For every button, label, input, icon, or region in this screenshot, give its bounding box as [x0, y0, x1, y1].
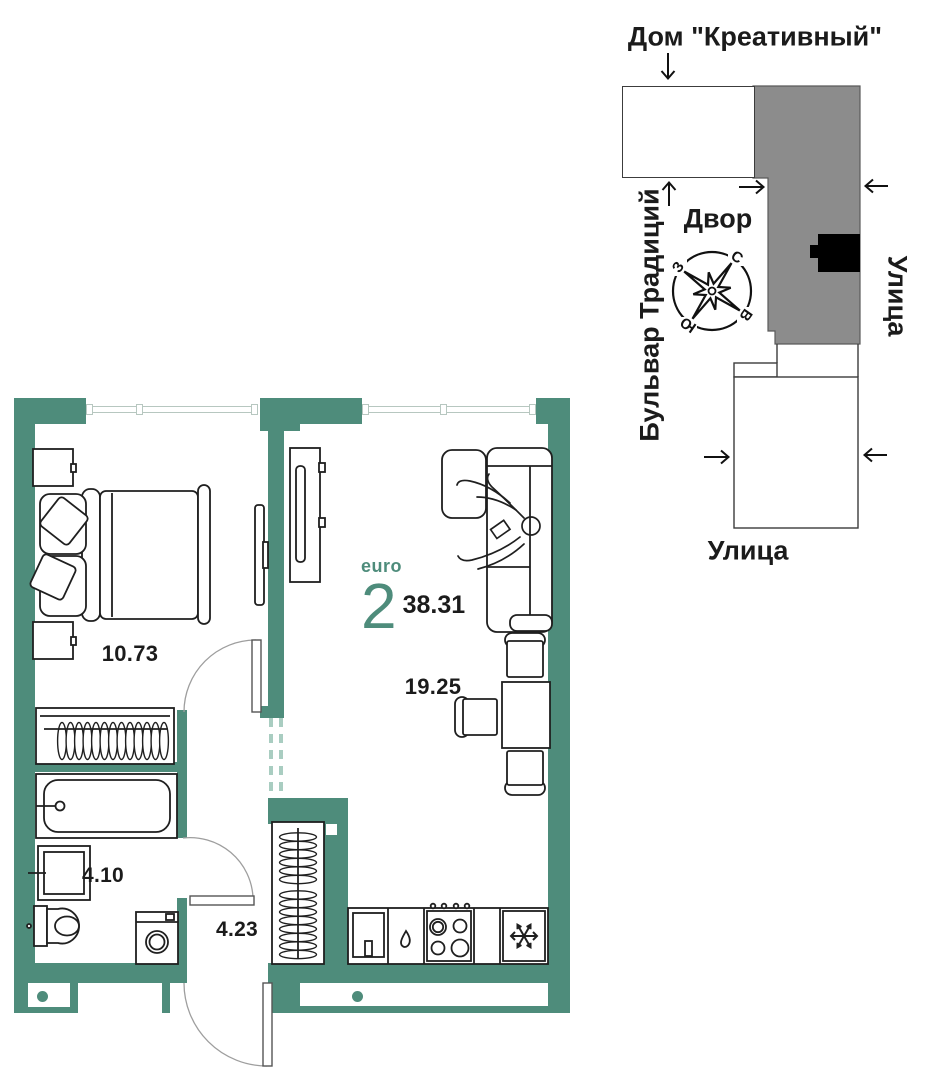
living-area-label: 19.25 — [405, 674, 462, 700]
toilet-button — [27, 924, 31, 928]
building-c — [734, 377, 858, 528]
arrow-right-icon — [739, 181, 764, 194]
nightstand — [33, 449, 73, 486]
bathroom-area-label: 4.10 — [82, 864, 124, 888]
stove-knob — [465, 904, 470, 909]
rooms-count: 2 — [361, 577, 397, 636]
bedroom-door-leaf — [252, 640, 261, 712]
nightstand-knob — [71, 464, 76, 472]
nightstand — [33, 622, 73, 659]
screenshot-root: С В Ю З 10.73 19.25 4.10 4.23 euro 2 38.… — [0, 0, 937, 1080]
tv-screen — [296, 466, 305, 562]
bedroom-area-label: 10.73 — [102, 641, 159, 667]
stove-knob — [442, 904, 447, 909]
total-area: 38.31 — [403, 591, 466, 620]
hallway-wardrobe — [272, 822, 324, 964]
arrow-down-icon — [662, 53, 675, 79]
washer-door-inner — [150, 935, 165, 950]
building-c-nub — [734, 363, 777, 377]
burner — [452, 940, 469, 957]
nightstand-knob — [71, 637, 76, 645]
tv-unit-knob — [319, 463, 325, 472]
street-right-label: Улица — [882, 256, 913, 337]
entrance-door-arc — [184, 983, 267, 1066]
chair-seat — [463, 699, 497, 735]
washer-detergent — [166, 914, 174, 920]
dining-table — [502, 682, 550, 748]
arrow-left-icon — [866, 180, 889, 193]
burner — [432, 942, 445, 955]
sofa-armrest — [510, 615, 552, 631]
stove-knob — [454, 904, 459, 909]
chair-seat — [507, 751, 543, 785]
bedroom-tv-mount — [263, 542, 268, 568]
kitchen — [348, 904, 548, 964]
bathroom-door-leaf — [190, 896, 254, 905]
bed-footboard — [198, 485, 210, 624]
apartment-type-block: euro 2 38.31 — [361, 556, 465, 636]
bathtub-faucet — [56, 802, 65, 811]
burner — [454, 920, 467, 933]
building-white — [622, 86, 755, 178]
plan-and-map-graphics: С В Ю З — [0, 0, 937, 1080]
bedroom-furniture — [29, 449, 268, 764]
bath-sink-inner — [44, 852, 84, 894]
doors — [183, 640, 272, 1066]
arrow-right-icon — [704, 451, 729, 464]
bedroom-door-arc — [184, 640, 256, 712]
bathroom-door-arc — [183, 838, 253, 897]
stove-knob — [431, 904, 436, 909]
kitchen-sink-handle — [365, 941, 372, 956]
building-gray — [753, 86, 860, 344]
yard-label: Двор — [684, 204, 752, 235]
wardrobe-hangers — [58, 723, 169, 760]
toilet-seat — [55, 917, 79, 936]
map-title: Дом "Креативный" — [628, 22, 882, 53]
arrow-left-icon — [865, 449, 888, 462]
street-bottom-label: Улица — [708, 536, 789, 567]
boulevard-label: Бульвар Традиций — [635, 188, 666, 441]
bed-mattress — [100, 491, 198, 619]
compass-center — [709, 288, 716, 295]
toilet-tank — [34, 906, 47, 946]
tv-unit-knob — [319, 518, 325, 527]
burner — [433, 922, 443, 932]
hallway-area-label: 4.23 — [216, 918, 258, 942]
chair-seat — [507, 641, 543, 677]
sofa-body — [487, 448, 552, 632]
compass-rose: С В Ю З — [669, 247, 756, 336]
entrance-door-leaf — [263, 983, 272, 1066]
